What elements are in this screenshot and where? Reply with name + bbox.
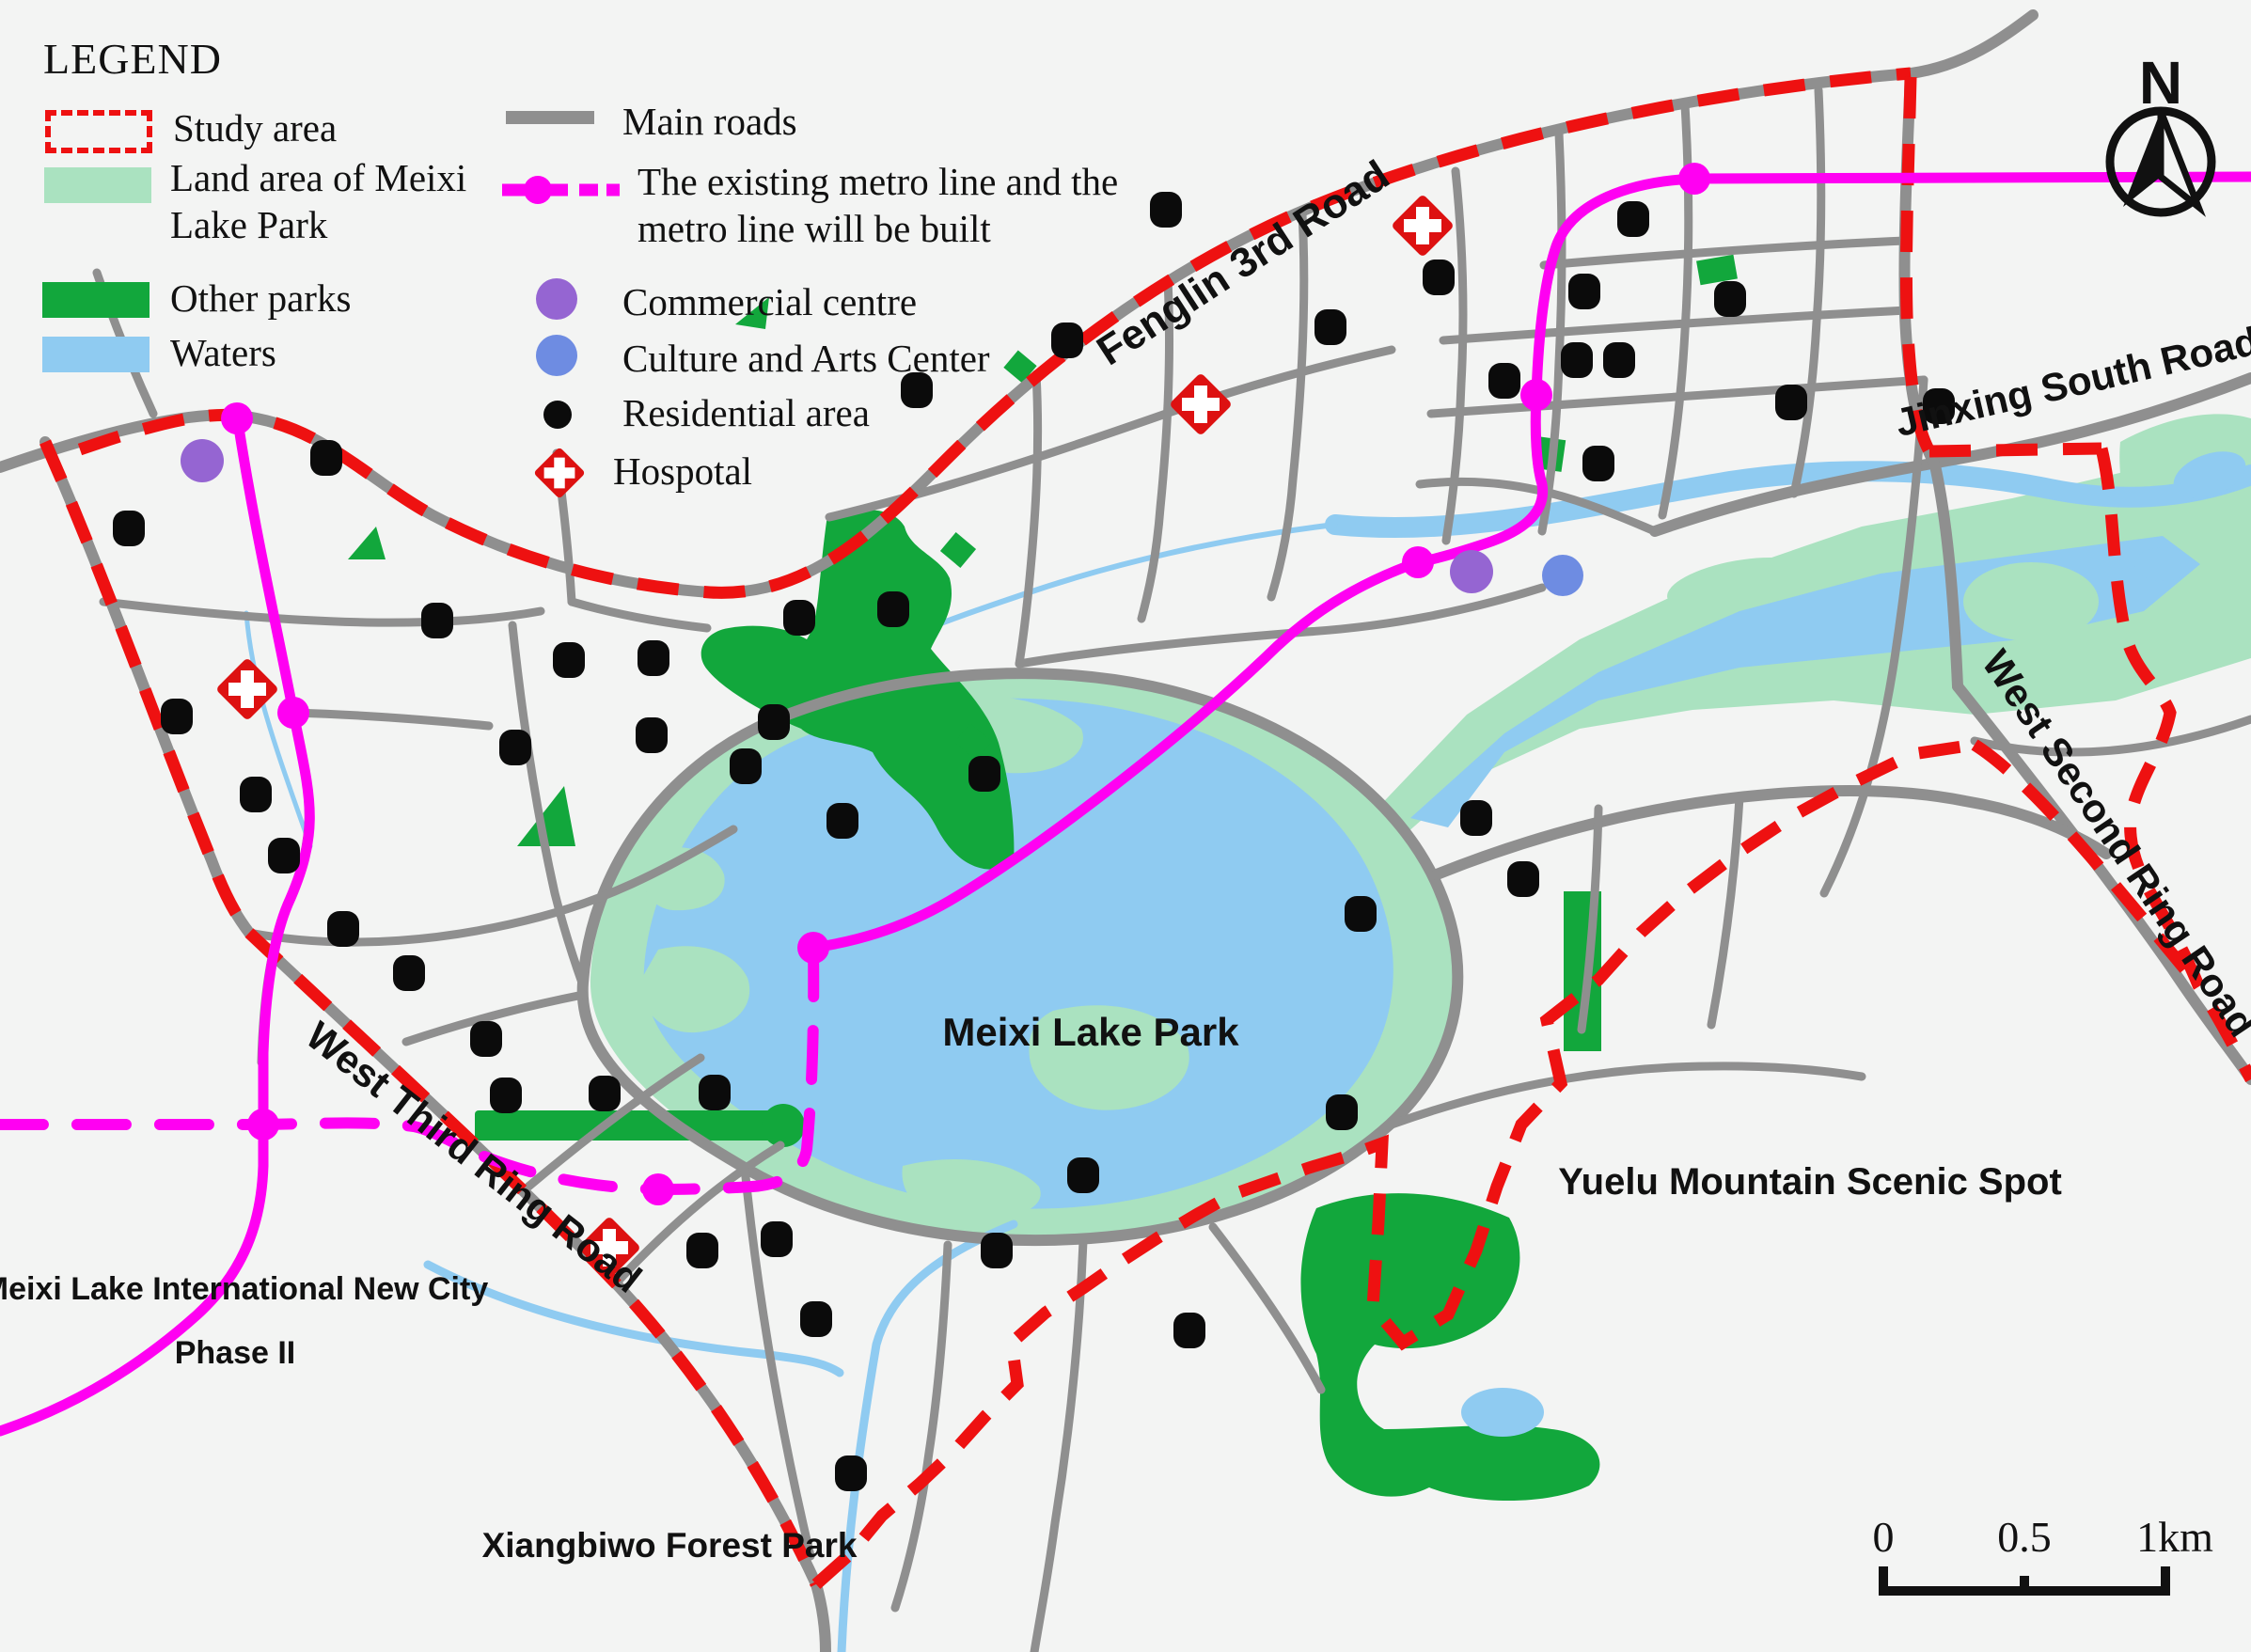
- map-canvas[interactable]: Fenglin 3rd Road Jinxing South Road West…: [0, 0, 2251, 1652]
- legend-item-commercial: Commercial centre: [536, 278, 917, 325]
- legend-item-hospital: Hospotal: [528, 442, 752, 504]
- legend-item-label: Study area: [173, 104, 337, 151]
- metro-station: [277, 697, 309, 729]
- legend-item-culture: Culture and Arts Center: [536, 335, 990, 382]
- pond: [1461, 1388, 1544, 1437]
- north-arrow-icon: N: [2110, 49, 2212, 212]
- legend-item-meixi-land: Land area of Meixi Lake Park: [44, 167, 480, 248]
- legend-item-label: Culture and Arts Center: [622, 335, 990, 382]
- metro-station: [1520, 379, 1552, 411]
- metro-station: [1402, 546, 1434, 578]
- legend-item-main-roads: Main roads: [506, 98, 797, 145]
- legend-item-other-parks: Other parks: [42, 282, 351, 322]
- metro-station: [642, 1173, 674, 1205]
- metro-station: [797, 932, 829, 964]
- other-parks-swatch: [42, 282, 150, 318]
- scale-tick-05: 0.5: [1997, 1513, 2052, 1561]
- metro-station: [1678, 163, 1710, 195]
- metro-station: [247, 1109, 279, 1141]
- legend-item-waters: Waters: [42, 337, 276, 376]
- legend-item-label: Waters: [170, 329, 276, 376]
- label-west-third-ring: West Third Ring Road: [298, 1013, 650, 1301]
- legend-item-label: Hospotal: [613, 448, 752, 495]
- waters-swatch: [42, 337, 150, 372]
- label-new-city-line2: Phase II: [175, 1335, 296, 1371]
- legend-item-residential: Residential area: [543, 395, 870, 436]
- legend-item-study-area: Study area: [45, 110, 337, 153]
- legend-item-label: Residential area: [622, 389, 870, 436]
- label-new-city-line1: Meixi Lake International New City: [0, 1271, 488, 1307]
- legend-title: LEGEND: [43, 34, 222, 84]
- legend-item-label: The existing metro line and the metro li…: [638, 158, 1183, 252]
- scale-tick-1km: 1km: [2136, 1513, 2213, 1561]
- legend-item-label: Land area of Meixi Lake Park: [170, 154, 480, 248]
- legend-item-label: Main roads: [622, 98, 797, 145]
- legend-item-metro: The existing metro line and the metro li…: [500, 158, 1183, 252]
- main-roads-swatch: [506, 111, 594, 124]
- study-area-swatch: [45, 110, 152, 153]
- scale-bar: 0 0.5 1km: [1873, 1513, 2214, 1591]
- legend: LEGEND Study area Land area of Meixi Lak…: [0, 0, 1044, 508]
- culture-arts-swatch: [536, 335, 577, 376]
- meixi-land-swatch: [44, 167, 151, 203]
- hospital-icon: [528, 442, 590, 504]
- north-label: N: [2139, 49, 2182, 117]
- label-meixi-lake-park: Meixi Lake Park: [942, 1010, 1239, 1054]
- label-west-second-ring: West Second Ring Road: [1974, 642, 2251, 1045]
- culture-arts-center-marker: [1542, 555, 1583, 596]
- scale-tick-0: 0: [1873, 1513, 1895, 1561]
- commercial-centre-swatch: [536, 278, 577, 320]
- legend-item-label: Commercial centre: [622, 278, 917, 325]
- legend-item-label: Other parks: [170, 275, 351, 322]
- label-yuelu-mountain: Yuelu Mountain Scenic Spot: [1558, 1161, 2062, 1203]
- metro-line-swatch: [500, 169, 622, 211]
- residential-swatch: [543, 401, 572, 429]
- label-xiangbiwo: Xiangbiwo Forest Park: [482, 1526, 858, 1565]
